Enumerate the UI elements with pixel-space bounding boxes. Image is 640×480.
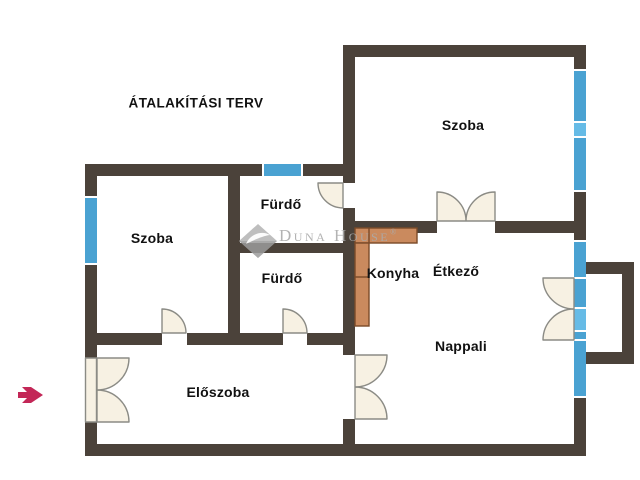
window-szoba-top-right — [574, 70, 586, 192]
entrance-door-panel — [86, 358, 97, 422]
kitchen-counter-side — [355, 243, 369, 326]
wall-left-section-top-a — [85, 164, 263, 176]
wall-eloszoba-b — [187, 333, 283, 345]
balcony-wall-bottom — [586, 352, 634, 364]
wall-bottom — [85, 444, 586, 456]
room-label-nappali: Nappali — [435, 338, 487, 354]
balcony-double-door — [543, 278, 574, 340]
wall-left-c — [85, 422, 97, 456]
entrance-double-door — [97, 358, 129, 422]
plan-title: ÁTALAKÍTÁSI TERV — [129, 96, 264, 111]
doorway-gaps — [85, 183, 495, 422]
wall-szobatop-bottom-b — [495, 221, 574, 233]
gap-furdo-top-door — [343, 183, 355, 208]
room-label-etkezo: Étkező — [433, 263, 479, 279]
room-label-furdo-top: Fürdő — [261, 196, 302, 212]
nappali-double-door — [355, 355, 387, 419]
entrance-arrow-icon — [18, 387, 43, 403]
window-szoba-left — [85, 197, 97, 265]
room-label-szoba-top: Szoba — [442, 117, 484, 133]
gap-szobatop-door — [437, 221, 495, 233]
wall-left-section-top-b — [302, 164, 343, 176]
room-label-konyha: Konyha — [367, 265, 420, 281]
gap-furdobottom-door — [283, 333, 307, 345]
gap-szobaleft-door — [162, 333, 187, 345]
wall-eloszoba-a — [92, 333, 162, 345]
room-label-furdo-bottom: Fürdő — [262, 270, 303, 286]
gap-nappali-door — [343, 355, 355, 419]
furdo-bottom-door — [283, 309, 307, 333]
wall-top — [343, 45, 586, 57]
room-label-eloszoba: Előszoba — [186, 384, 249, 400]
watermark-brand-text: Duna House — [279, 226, 390, 245]
furdo-top-door — [318, 183, 343, 208]
window-furdo-top — [263, 164, 302, 176]
floorplan-canvas: ÁTALAKÍTÁSI TERV Szoba Szoba Fürdő Fürdő… — [0, 0, 640, 480]
watermark-brand: Duna House® — [279, 226, 396, 246]
wall-center-a — [343, 45, 355, 183]
szoba-left-door — [162, 309, 186, 333]
wall-center-c — [343, 419, 355, 449]
szoba-top-double-door — [437, 192, 495, 221]
balcony-wall-right — [622, 262, 634, 364]
wall-eloszoba-c — [307, 333, 355, 345]
room-label-szoba-left: Szoba — [131, 230, 173, 246]
wall-szoba-furdo — [228, 176, 240, 333]
doors — [86, 183, 575, 422]
window-nappali-right — [574, 241, 586, 398]
watermark-registered-mark: ® — [390, 227, 396, 236]
wall-right-middle — [574, 190, 586, 241]
